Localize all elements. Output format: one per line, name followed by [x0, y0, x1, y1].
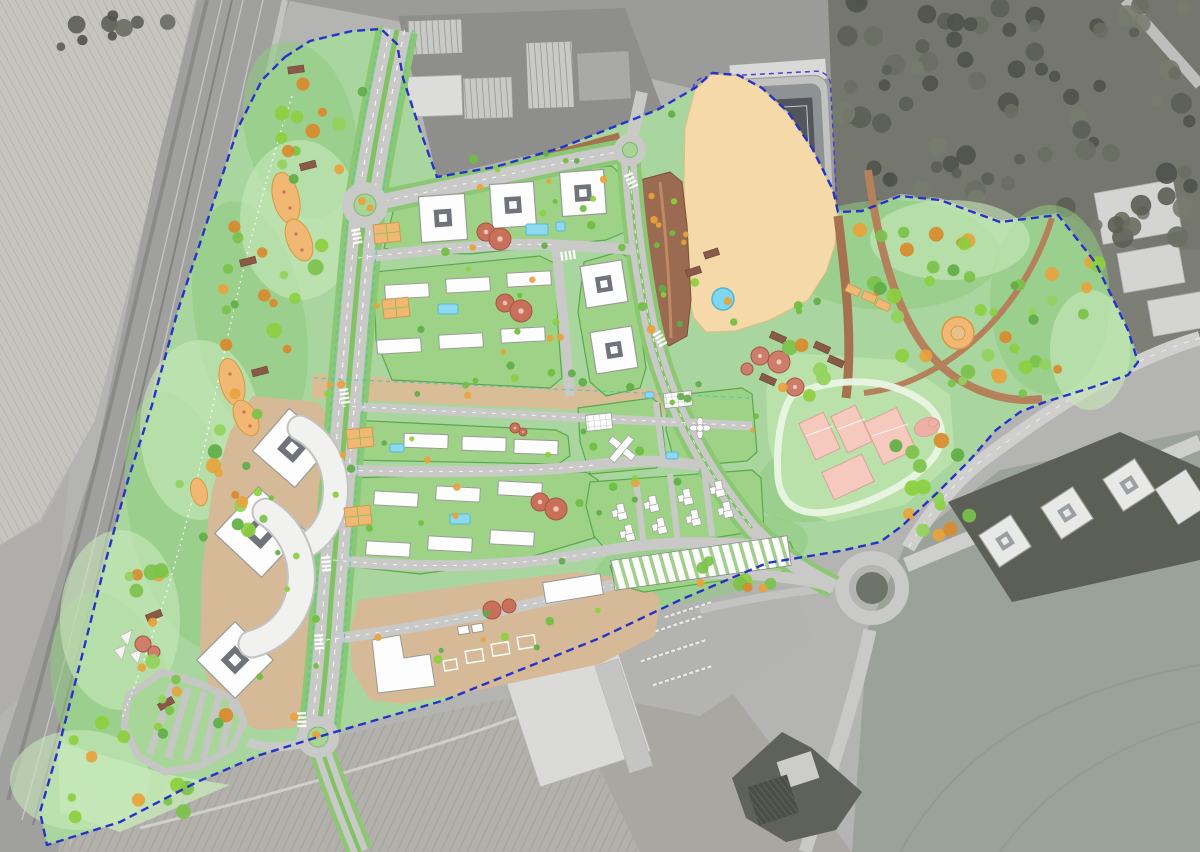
masterplan-aerial-view	[0, 0, 1200, 852]
roundabout-se-island	[856, 572, 888, 604]
masterplan-canvas	[0, 0, 1200, 852]
greenhouse-white	[407, 75, 462, 117]
circle-plaza-inner	[951, 326, 965, 340]
roundabout-n-island	[623, 143, 638, 158]
greenhouse-striped-2	[463, 77, 512, 119]
roundabout-nw-island	[354, 194, 376, 216]
pool-building-roof	[526, 41, 574, 109]
parking-stub	[248, 742, 300, 747]
greenhouse-dark	[577, 51, 631, 102]
